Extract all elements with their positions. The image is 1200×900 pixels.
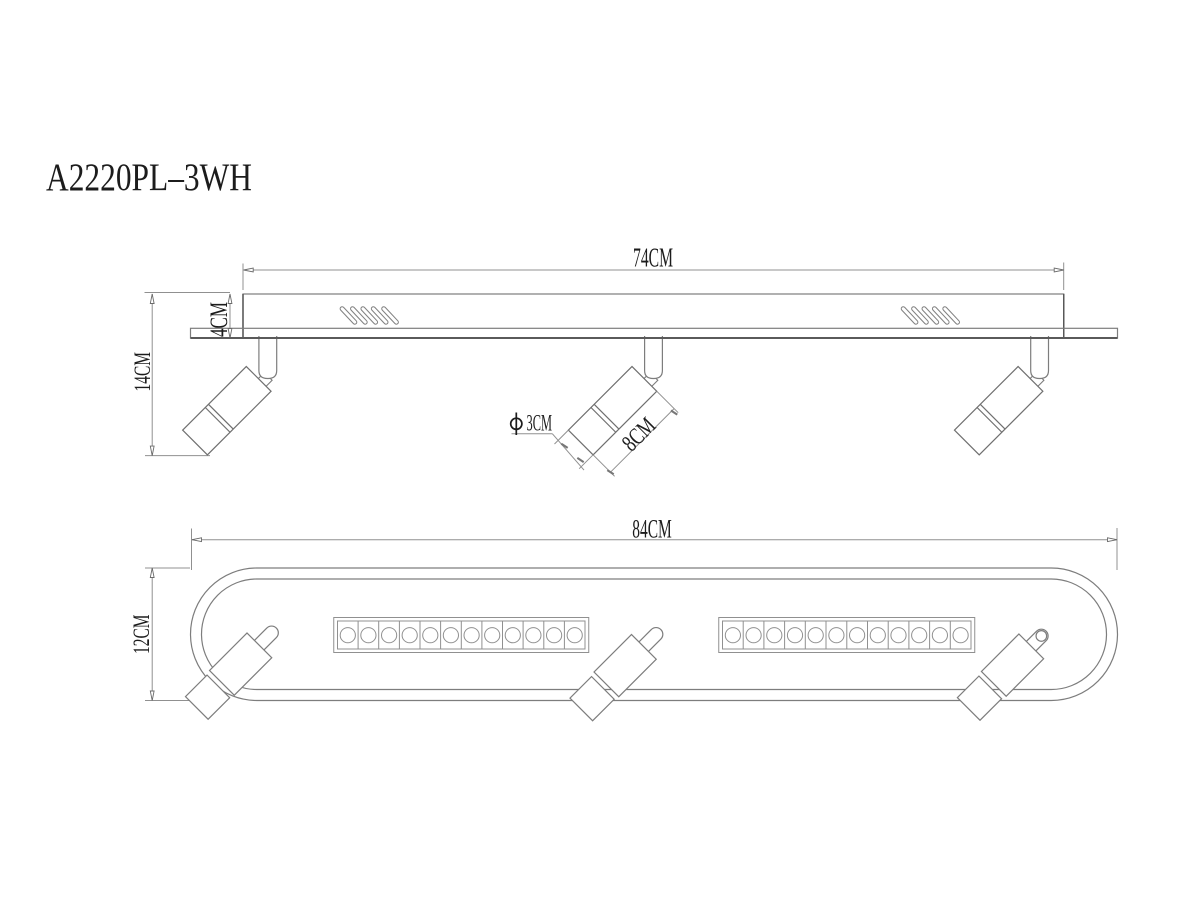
svg-text:3CM: 3CM <box>527 410 553 435</box>
svg-text:4CM: 4CM <box>206 302 233 337</box>
svg-text:14CM: 14CM <box>130 352 155 392</box>
svg-text:A2220PL–3WH: A2220PL–3WH <box>46 156 252 199</box>
svg-text:74CM: 74CM <box>633 243 673 273</box>
svg-text:84CM: 84CM <box>632 515 672 544</box>
svg-text:12CM: 12CM <box>129 615 154 655</box>
